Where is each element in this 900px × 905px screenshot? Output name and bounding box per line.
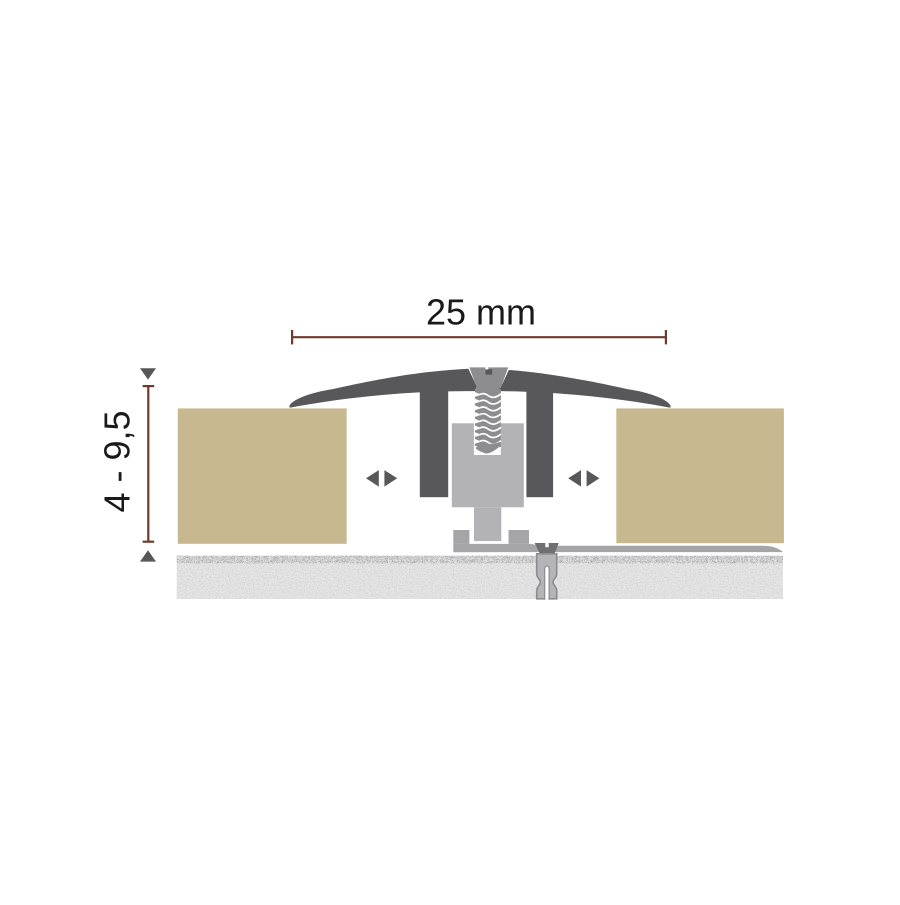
- svg-text:25 mm: 25 mm: [426, 292, 536, 333]
- svg-text:4 - 9,5: 4 - 9,5: [97, 410, 138, 512]
